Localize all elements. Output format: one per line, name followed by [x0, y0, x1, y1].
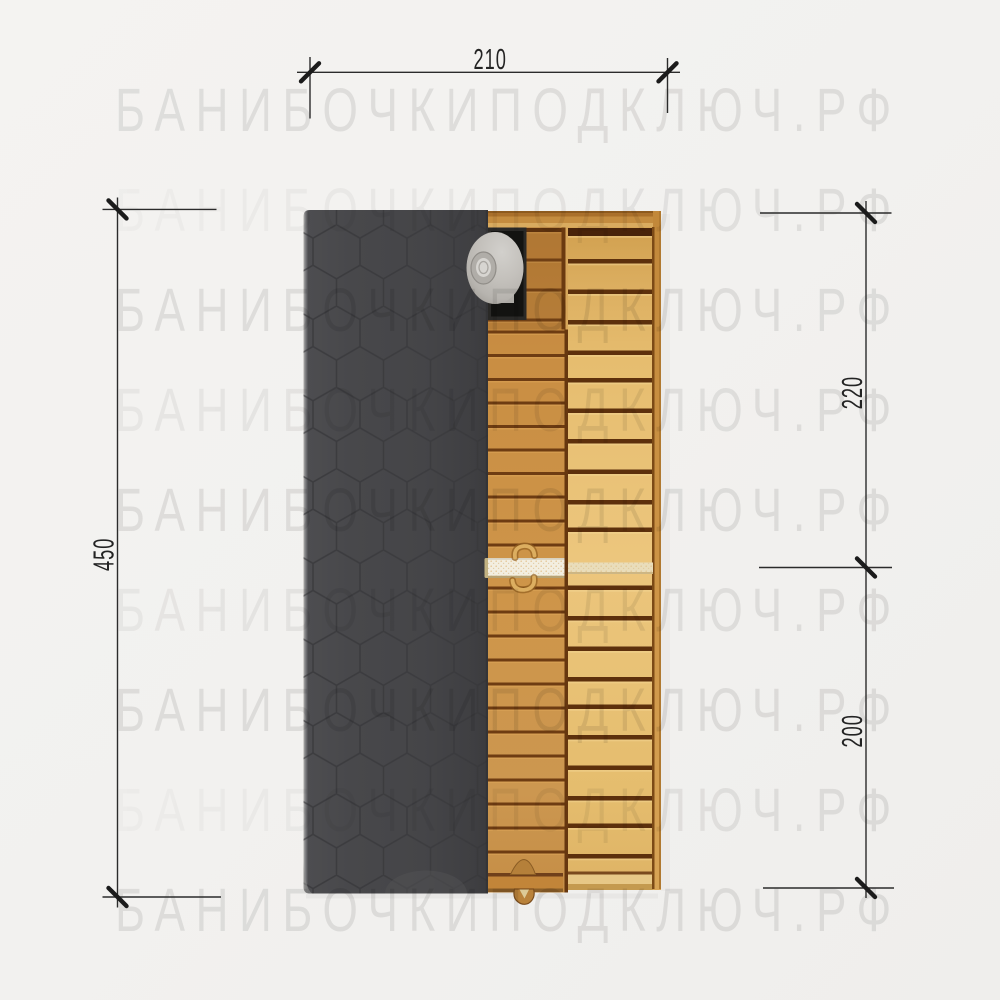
svg-text:БАНИБОЧКИПОДКЛЮЧ.РФ: БАНИБОЧКИПОДКЛЮЧ.РФ: [115, 577, 902, 645]
svg-text:БАНИБОЧКИПОДКЛЮЧ.РФ: БАНИБОЧКИПОДКЛЮЧ.РФ: [115, 677, 902, 745]
svg-text:450: 450: [88, 538, 120, 571]
svg-text:БАНИБОЧКИПОДКЛЮЧ.РФ: БАНИБОЧКИПОДКЛЮЧ.РФ: [115, 377, 902, 445]
svg-text:БАНИБОЧКИПОДКЛЮЧ.РФ: БАНИБОЧКИПОДКЛЮЧ.РФ: [115, 477, 902, 545]
svg-text:БАНИБОЧКИПОДКЛЮЧ.РФ: БАНИБОЧКИПОДКЛЮЧ.РФ: [115, 177, 902, 245]
svg-text:БАНИБОЧКИПОДКЛЮЧ.РФ: БАНИБОЧКИПОДКЛЮЧ.РФ: [115, 777, 902, 845]
svg-text:210: 210: [474, 44, 507, 76]
svg-text:БАНИБОЧКИПОДКЛЮЧ.РФ: БАНИБОЧКИПОДКЛЮЧ.РФ: [115, 277, 902, 345]
svg-text:БАНИБОЧКИПОДКЛЮЧ.РФ: БАНИБОЧКИПОДКЛЮЧ.РФ: [115, 77, 902, 145]
svg-text:БАНИБОЧКИПОДКЛЮЧ.РФ: БАНИБОЧКИПОДКЛЮЧ.РФ: [115, 877, 902, 945]
svg-text:200: 200: [837, 714, 869, 747]
svg-text:220: 220: [837, 376, 869, 409]
